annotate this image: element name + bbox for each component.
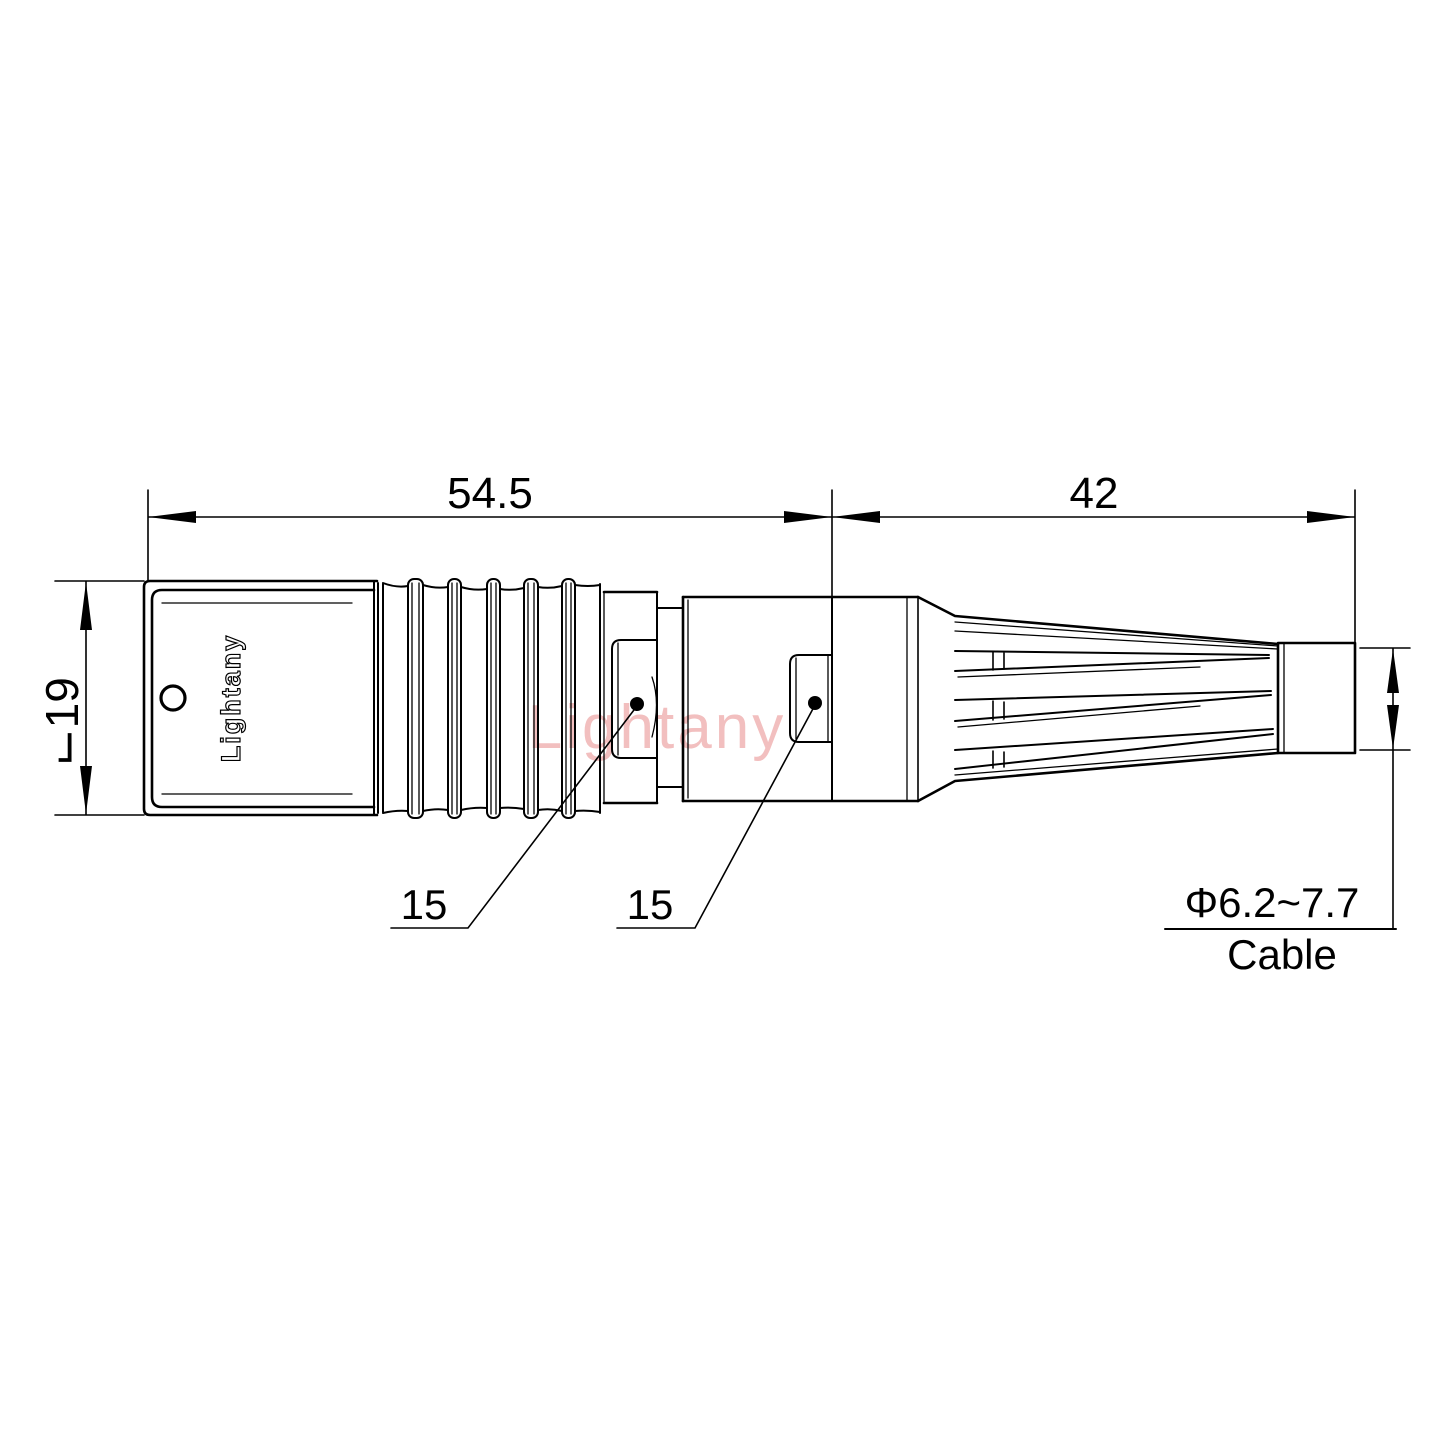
cable-range-label: Φ6.2~7.7 <box>1185 879 1360 926</box>
leader-dot-front <box>630 697 644 711</box>
housing-outline <box>144 581 377 815</box>
dimension-front-length: 54.5 <box>148 469 832 581</box>
cone-top-outline <box>918 597 1278 644</box>
dia19-arrow-down <box>80 766 92 814</box>
dimension-cable: Φ6.2~7.7 Cable <box>1165 648 1410 978</box>
dim545-arrow-left <box>148 511 196 523</box>
cable-arrow-down <box>1387 705 1399 749</box>
dim545-label: 54.5 <box>447 469 533 518</box>
bellows-left-edges <box>378 583 383 813</box>
drawing-canvas: Lightany Lightany <box>0 0 1440 1440</box>
fin-slot-2 <box>955 691 1271 721</box>
fin-slot-1 <box>955 651 1269 671</box>
cable-dim-lines <box>1360 648 1410 929</box>
dia19-arrow-up <box>80 582 92 630</box>
cable-ferrule <box>1278 643 1355 753</box>
cable-caption-label: Cable <box>1227 931 1337 978</box>
index-hole <box>161 686 185 710</box>
dim42-arrow-left <box>832 511 880 523</box>
dim545-arrow-right <box>784 511 832 523</box>
brand-engraving: Lightany <box>216 634 246 763</box>
connector-dimension-drawing: Lightany Lightany <box>0 0 1440 1440</box>
leader2-label: 15 <box>627 881 674 928</box>
dia19-label: ⌙19 <box>36 677 88 767</box>
dim42-arrow-right <box>1307 511 1355 523</box>
housing-inner-lines <box>162 603 352 794</box>
left-housing: Lightany <box>144 581 377 815</box>
cable-arrow-up <box>1387 649 1399 693</box>
cone-bottom-outline <box>918 753 1278 801</box>
leader-dot-rear <box>808 696 822 710</box>
strain-relief-cone <box>918 597 1278 801</box>
ferrule-outline <box>1278 643 1355 753</box>
dimension-body-diameter: ⌙19 <box>36 581 144 815</box>
fin-slot-3 <box>955 729 1273 769</box>
dim42-label: 42 <box>1070 469 1119 518</box>
leader1-label: 15 <box>401 881 448 928</box>
